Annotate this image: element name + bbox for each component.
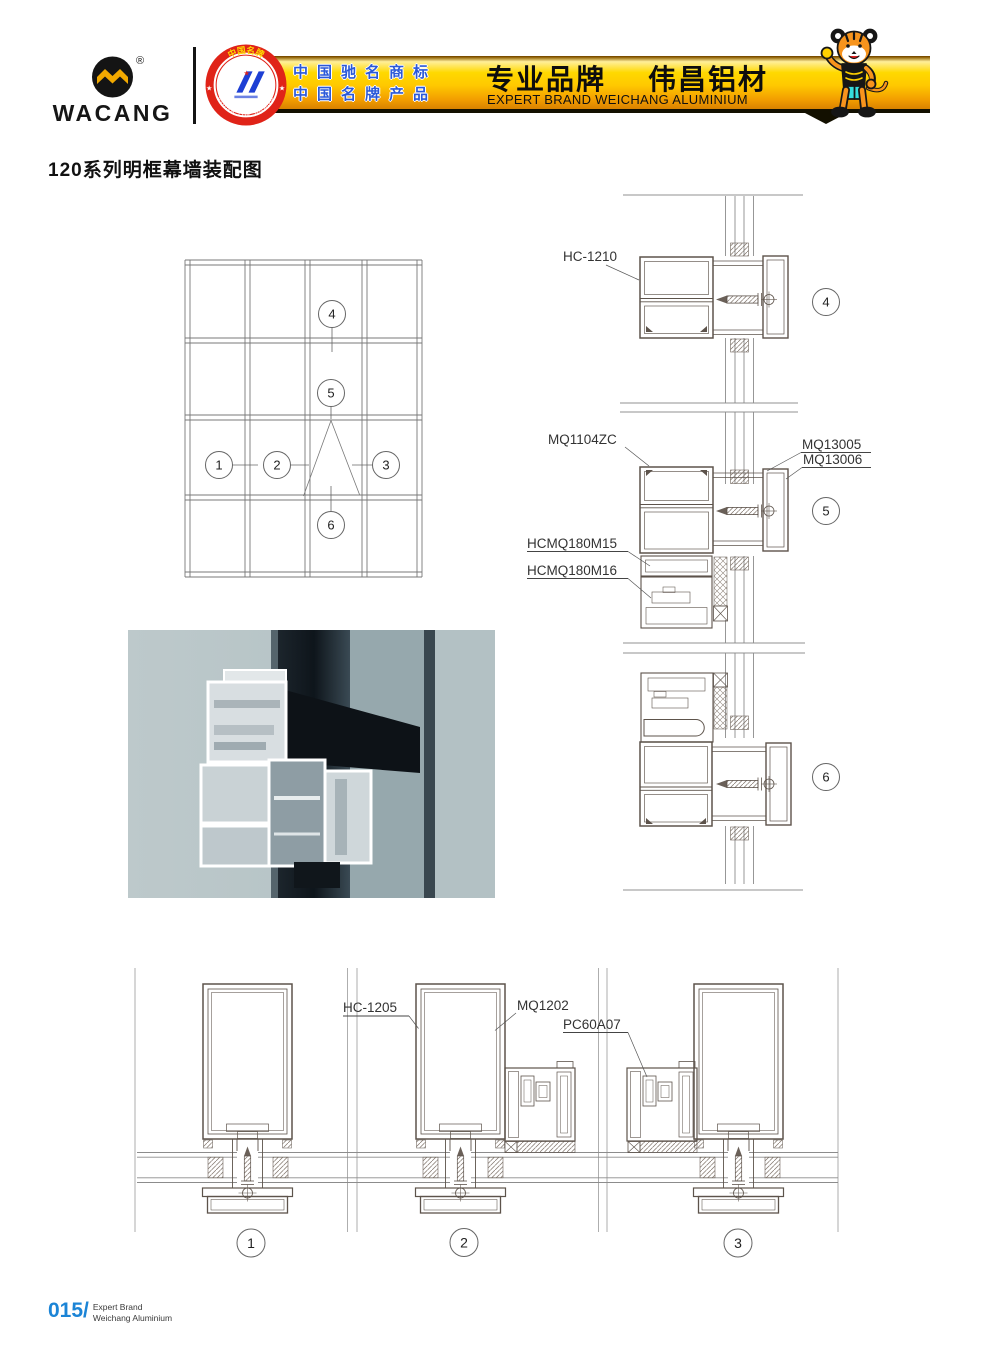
label-hc-1210: HC-1210 [563,249,617,264]
footer-text: Expert Brand Weichang Aluminium [93,1300,172,1324]
detail-4-section [640,256,788,338]
label-mq1202: MQ1202 [517,998,569,1013]
detail-callout-3: 3 [724,1229,752,1257]
detail-callout-6: 6 [813,764,840,791]
label-hcmq180m15: HCMQ180M15 [527,536,617,551]
glass-spacer-gaskets [731,243,749,840]
svg-text:5: 5 [822,504,829,519]
detail-callout-2: 2 [450,1229,478,1257]
awning-window-symbol [304,421,360,497]
transom-glass-lines [137,1153,838,1183]
elevation-callout-5: 5 [318,380,345,407]
label-hc-1205: HC-1205 [343,1000,397,1015]
svg-text:5: 5 [327,386,334,401]
detail-5-section [640,467,788,628]
bottom-section-plane-lines [135,968,838,1232]
detail-callout-1: 1 [237,1229,265,1257]
svg-text:6: 6 [327,518,334,533]
elevation-callout-6: 6 [318,512,345,539]
detail-callout-5: 5 [813,498,840,525]
profile-render-photo [128,630,495,898]
svg-text:2: 2 [460,1235,468,1251]
elevation-callout-2: 2 [264,452,291,479]
elevation-callout-4: 4 [319,301,346,328]
under-sash-insulation [505,1142,697,1153]
footer-line-2: Weichang Aluminium [93,1313,172,1323]
detail-2-section [416,984,576,1213]
svg-text:1: 1 [215,458,222,473]
label-mq13005: MQ13005 [802,437,861,452]
svg-text:3: 3 [382,458,389,473]
label-hcmq180m16: HCMQ180M16 [527,563,617,578]
footer-line-1: Expert Brand [93,1302,143,1312]
svg-text:2: 2 [273,458,280,473]
label-pc60a07: PC60A07 [563,1017,621,1032]
elevation-callout-1: 1 [206,452,233,479]
elevation-leader-lines [233,328,373,512]
svg-text:6: 6 [822,770,829,785]
label-mq1104zc: MQ1104ZC [548,432,617,447]
label-mq13006: MQ13006 [803,452,862,467]
page-number: 015/ [48,1300,89,1321]
detail-1-section [203,984,293,1213]
elevation-grid [185,260,422,577]
detail-callout-4: 4 [813,289,840,316]
elevation-callout-3: 3 [373,452,400,479]
transom-spacer-gaskets [208,1157,780,1178]
svg-text:1: 1 [247,1235,255,1251]
page-footer: 015/ Expert Brand Weichang Aluminium [48,1300,172,1324]
detail-3-section [627,984,784,1213]
svg-text:4: 4 [822,295,829,310]
detail-6-section [640,673,791,826]
svg-text:4: 4 [328,307,335,322]
svg-text:3: 3 [734,1235,742,1251]
